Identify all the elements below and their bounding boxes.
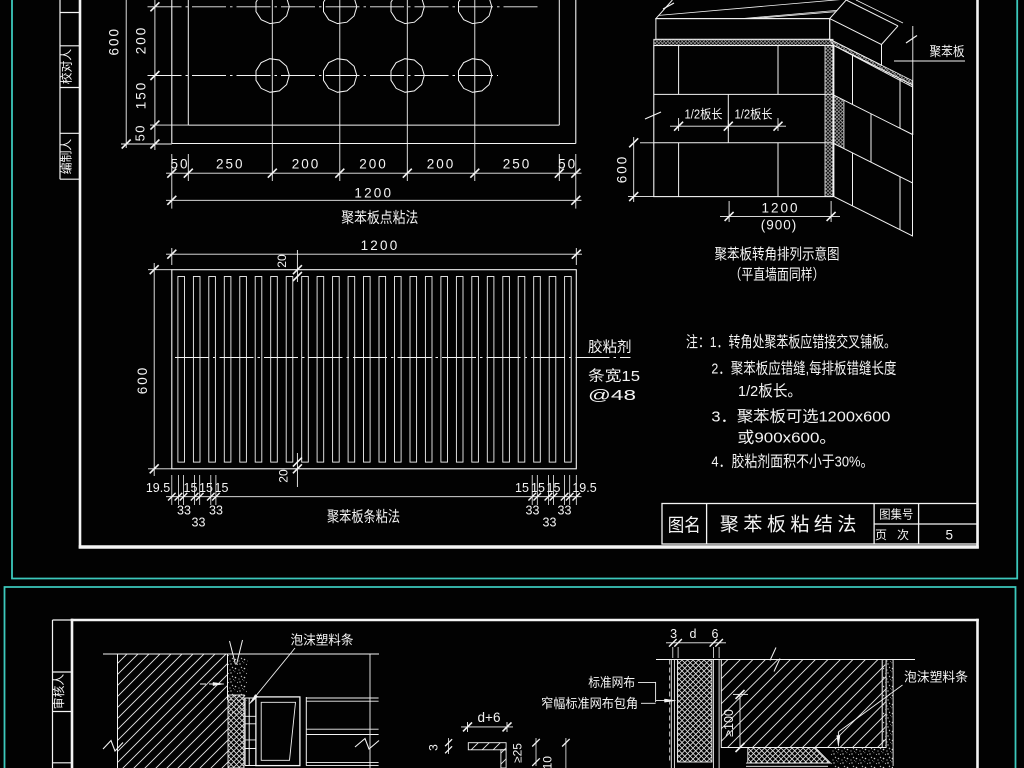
svg-text:200: 200 [427,157,456,172]
svg-text:泡沫塑料条: 泡沫塑料条 [904,670,968,685]
svg-text:33: 33 [192,516,206,530]
svg-text:15: 15 [515,481,529,495]
svg-text:图集号: 图集号 [879,506,913,521]
svg-text:1/2板长: 1/2板长 [685,108,723,122]
svg-text:1200: 1200 [361,238,400,253]
svg-text:19.5: 19.5 [572,481,596,495]
svg-text:d+6: d+6 [478,710,501,725]
svg-text:33: 33 [177,504,191,518]
svg-text:≥25: ≥25 [511,743,525,763]
svg-text:15: 15 [215,481,229,495]
svg-text:图名: 图名 [668,516,701,536]
svg-text:聚苯板点粘法: 聚苯板点粘法 [341,209,418,227]
svg-text:≥10: ≥10 [541,756,555,768]
svg-text:50: 50 [170,157,189,172]
svg-text:20: 20 [275,254,289,268]
svg-text:250: 250 [503,157,532,172]
svg-text:200: 200 [359,157,388,172]
svg-text:600: 600 [135,366,150,395]
svg-text:50: 50 [133,124,148,141]
svg-text:注：1．转角处聚苯板应错接交叉铺板。: 注：1．转角处聚苯板应错接交叉铺板。 [686,333,896,351]
svg-text:1/2板长。: 1/2板长。 [738,382,802,400]
svg-text:15: 15 [547,481,561,495]
svg-text:聚苯板转角排列示意图: 聚苯板转角排列示意图 [715,245,840,263]
svg-text:胶粘剂: 胶粘剂 [588,339,632,356]
svg-text:泡沫塑料条: 泡沫塑料条 [291,633,354,648]
svg-text:或900x600。: 或900x600。 [737,430,836,447]
svg-text:(900): (900) [761,218,798,233]
svg-text:条宽15: 条宽15 [588,368,640,385]
svg-text:2．聚苯板应错缝,每排板错缝长度: 2．聚苯板应错缝,每排板错缝长度 [711,360,896,378]
svg-text:19.5: 19.5 [146,481,170,495]
svg-text:聚苯板: 聚苯板 [930,44,965,59]
svg-text:15: 15 [199,481,213,495]
svg-text:聚苯板粘结法: 聚苯板粘结法 [720,514,861,536]
svg-text:4．胶粘剂面积不小于30%。: 4．胶粘剂面积不小于30%。 [711,454,873,471]
svg-text:600: 600 [107,27,122,56]
svg-text:20: 20 [277,469,291,483]
svg-text:≥100: ≥100 [722,709,736,737]
svg-text:200: 200 [292,157,321,172]
svg-text:3．聚苯板可选1200x600: 3．聚苯板可选1200x600 [711,408,890,426]
svg-text:聚苯板条粘法: 聚苯板条粘法 [327,508,400,526]
svg-text:校对人: 校对人 [60,49,74,85]
svg-text:@48: @48 [588,387,636,404]
svg-text:1200: 1200 [354,185,393,200]
svg-text:6: 6 [712,627,719,641]
svg-text:5: 5 [946,528,954,543]
svg-text:页次: 页次 [875,528,919,542]
svg-text:33: 33 [209,504,223,518]
svg-text:1200: 1200 [761,200,799,215]
svg-text:编制人: 编制人 [60,139,74,175]
svg-text:200: 200 [134,26,149,55]
svg-text:窄幅标准网布包角: 窄幅标准网布包角 [541,696,638,711]
svg-text:15: 15 [184,481,198,495]
svg-text:1/2板长: 1/2板长 [735,108,773,122]
svg-text:250: 250 [216,157,245,172]
svg-text:d: d [690,627,697,641]
svg-text:33: 33 [526,504,540,518]
svg-text:150: 150 [134,81,149,110]
svg-text:50: 50 [558,157,577,172]
svg-text:15: 15 [531,481,545,495]
svg-text:33: 33 [558,504,572,518]
svg-text:（平直墙面同样）: （平直墙面同样） [730,267,825,284]
svg-text:600: 600 [615,155,630,184]
svg-text:标准网布: 标准网布 [588,675,635,690]
svg-text:审核人: 审核人 [52,674,66,710]
svg-text:3: 3 [427,744,441,751]
svg-text:33: 33 [543,516,557,530]
